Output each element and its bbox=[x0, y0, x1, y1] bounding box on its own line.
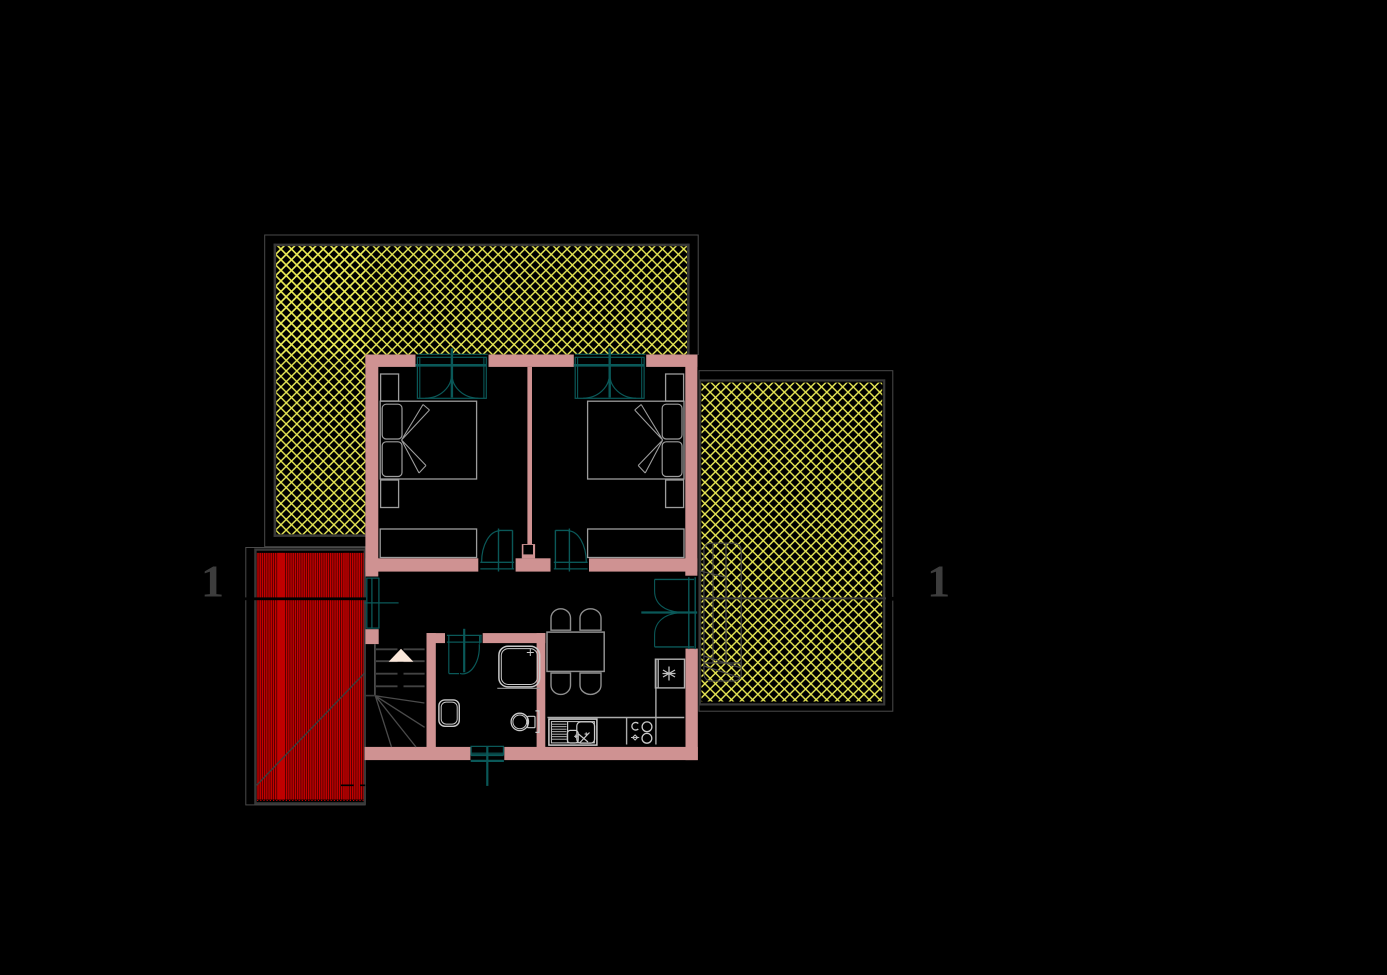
svg-text:1: 1 bbox=[201, 556, 224, 607]
svg-text:1: 1 bbox=[927, 556, 950, 607]
